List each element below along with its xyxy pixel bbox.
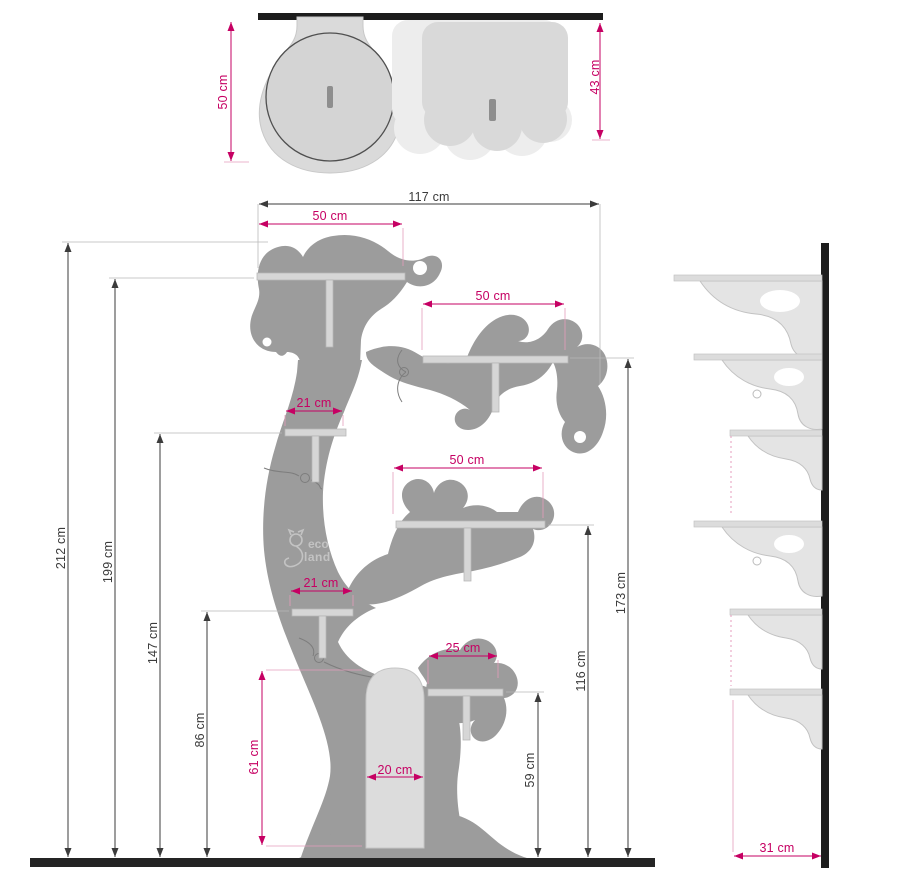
branch-hole xyxy=(574,431,586,443)
bracket-2-hole xyxy=(753,390,761,398)
shelf-top-support xyxy=(326,280,333,347)
tree-silhouette xyxy=(250,235,607,862)
door-opening xyxy=(366,668,424,848)
bracket-1 xyxy=(700,281,822,360)
tree-crown xyxy=(250,235,442,365)
shelf-low xyxy=(428,689,503,696)
dim-label-door-height: 61 cm xyxy=(247,739,261,774)
bracket-3 xyxy=(748,436,822,490)
dim-label-plan-right-height: 43 cm xyxy=(588,59,602,94)
front-view xyxy=(30,204,655,867)
crown-curl-cutout xyxy=(263,338,272,347)
shelf-right-support xyxy=(492,363,499,412)
shelf-small-lower-support xyxy=(319,616,326,658)
dim-label-right-shelf-width: 50 cm xyxy=(475,289,510,303)
bracket-2 xyxy=(722,360,822,429)
tree-branch-upper xyxy=(366,315,607,454)
shelf-middle-support xyxy=(464,528,471,581)
bracket-4 xyxy=(722,527,822,596)
brand-watermark-line2: land xyxy=(304,551,331,563)
dim-label-low-shelf-width: 25 cm xyxy=(445,641,480,655)
side-plate-5 xyxy=(730,609,822,615)
dim-label-door-width: 20 cm xyxy=(377,763,412,777)
bracket-6 xyxy=(748,695,822,749)
floor-line xyxy=(30,858,655,867)
tree-branch-middle xyxy=(348,479,554,604)
dim-label-low-shelf-height: 59 cm xyxy=(523,752,537,787)
bracket-5 xyxy=(748,615,822,669)
dim-label-middle-shelf-width: 50 cm xyxy=(449,453,484,467)
dim-label-middle-shelf-height: 116 cm xyxy=(574,650,588,691)
dim-label-shelf-depth: 31 cm xyxy=(759,841,794,855)
shelf-top xyxy=(257,273,405,280)
dim-label-total-height: 212 cm xyxy=(54,527,68,569)
shelf-right xyxy=(423,356,568,363)
bracket-1-cutout xyxy=(760,290,800,312)
dim-label-upper-small-width: 21 cm xyxy=(296,396,331,410)
dim-label-top-shelf-height: 199 cm xyxy=(101,541,115,583)
technical-drawing-canvas xyxy=(0,0,900,874)
dim-label-total-width: 117 cm xyxy=(408,190,449,204)
side-view xyxy=(674,243,829,868)
shelf-small-lower xyxy=(292,609,353,616)
side-plate-4 xyxy=(694,521,822,527)
side-shelf-profiles xyxy=(674,275,822,749)
cat-tree-dimension-drawing: 117 cm 212 cm 199 cm 147 cm 86 cm 173 cm… xyxy=(0,0,900,874)
dim-label-upper-small-height: 147 cm xyxy=(146,622,160,664)
dim-label-lower-small-width: 21 cm xyxy=(303,576,338,590)
dim-label-top-shelf-width: 50 cm xyxy=(312,209,347,223)
cloud-perch-plate xyxy=(422,22,568,151)
top-view xyxy=(224,13,610,173)
side-plate-2 xyxy=(694,354,822,360)
crown-hook-cutout xyxy=(413,261,427,275)
shelf-small-upper xyxy=(285,429,346,436)
side-plate-3 xyxy=(730,430,822,436)
dim-label-lower-small-height: 86 cm xyxy=(193,712,207,747)
bracket-4-cutout xyxy=(774,535,804,553)
shelf-low-support xyxy=(463,696,470,740)
bracket-2-cutout xyxy=(774,368,804,386)
shelf-middle xyxy=(396,521,545,528)
bracket-4-hole xyxy=(753,557,761,565)
side-plate-1 xyxy=(674,275,822,281)
round-perch-slot xyxy=(327,86,333,108)
dim-label-right-shelf-height: 173 cm xyxy=(614,572,628,614)
shelf-small-upper-support xyxy=(312,436,319,482)
cloud-perch-slot xyxy=(489,99,496,121)
side-plate-6 xyxy=(730,689,822,695)
brand-watermark-line1: eco xyxy=(308,538,329,550)
dim-label-plan-left-height: 50 cm xyxy=(216,74,230,109)
